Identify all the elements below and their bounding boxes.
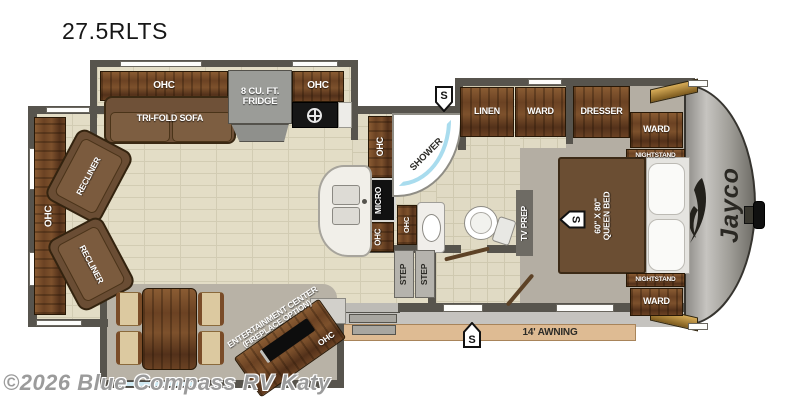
fridge-door [230, 124, 290, 142]
shower-label: SHOWER [409, 137, 445, 173]
bath-ward-label: WARD [527, 107, 554, 116]
dresser-label: DRESSER [580, 107, 622, 116]
stove-cooktop [292, 102, 338, 128]
svg-text:S: S [468, 334, 475, 346]
dinette-chair [116, 292, 142, 326]
pillow [648, 219, 685, 271]
hitch-pin [753, 201, 765, 229]
window [556, 304, 614, 312]
recliner-top-label: RECLINER [75, 155, 103, 196]
burner-icon [307, 108, 322, 123]
kitchen-slide-wall-left [90, 60, 97, 140]
sofa-label: TRI-FOLD SOFA [106, 114, 234, 123]
dinette-chair [198, 292, 224, 326]
window [443, 304, 483, 312]
kitchen-ohc-upper: OHC [368, 116, 393, 178]
step-1-label: STEP [400, 263, 409, 284]
bath-ward-cabinet: WARD [515, 87, 566, 137]
window [36, 320, 82, 326]
speaker-marker-icon: S [555, 211, 586, 229]
entry-step-3 [352, 325, 396, 335]
speaker-marker-icon: S [463, 322, 481, 353]
ward-bottom-cabinet: WARD [630, 288, 683, 316]
nightstand-bottom: NIGHTSTAND [626, 273, 685, 287]
fridge: 8 CU. FT. FRIDGE [228, 70, 292, 124]
recliner-bottom-label: RECLINER [77, 243, 105, 284]
speaker-marker-icon: S [435, 86, 453, 117]
cap-marker-light-top [688, 80, 708, 87]
tv-prep-label: TV PREP [520, 206, 529, 241]
entry-step-2 [349, 314, 397, 323]
awning-label: 14' AWNING [523, 328, 578, 339]
sofa-ohc-label: OHC [153, 81, 175, 92]
counter-strip [338, 102, 352, 128]
dresser: DRESSER [573, 86, 630, 138]
ward-top-label: WARD [643, 125, 670, 134]
svg-text:S: S [440, 90, 447, 102]
linen-cabinet: LINEN [460, 87, 514, 137]
rv-floorplan: 14' AWNING TV PREP [0, 0, 800, 405]
bedroom-top-wall [455, 78, 695, 86]
nightstand-top-label: NIGHTSTAND [635, 153, 675, 160]
dinette-table [142, 288, 197, 370]
fridge-label-line2: FRIDGE [243, 97, 278, 107]
dinette-chair [116, 331, 142, 365]
ward-top-cabinet: WARD [630, 112, 683, 148]
sink-bowl-1 [332, 185, 360, 205]
window [46, 107, 90, 113]
svg-text:S: S [570, 216, 582, 223]
dealer-watermark: ©2026 Blue Compass RV Katy [3, 370, 331, 396]
step-1: STEP [394, 250, 414, 298]
rear-ohc-label: OHC [45, 205, 56, 227]
microwave-label: MICRO [375, 186, 384, 213]
ward-bottom-label: WARD [643, 297, 670, 306]
floorplan-model-title: 27.5RLTS [62, 18, 168, 45]
vanity-ohc-label: OHC [403, 217, 411, 233]
step-2: STEP [415, 250, 435, 298]
window [528, 79, 562, 85]
vanity-basin [422, 214, 441, 242]
tv-prep-wall: TV PREP [516, 190, 533, 256]
linen-label: LINEN [474, 107, 500, 116]
window [120, 61, 202, 67]
kitchen-slide-wall-right [351, 60, 358, 140]
nightstand-bottom-label: NIGHTSTAND [635, 277, 675, 284]
faucet [362, 199, 367, 204]
vanity-ohc: OHC [397, 205, 417, 245]
stove-ohc-label: OHC [307, 81, 329, 92]
step-2-label: STEP [421, 263, 430, 284]
kitchen-ohc-lower-label: OHC [375, 228, 383, 245]
jayco-logo: Jayco [715, 175, 745, 235]
ward-dresser-divider-wall [566, 78, 573, 144]
window [292, 61, 338, 67]
stove-ohc-cabinet: OHC [292, 71, 344, 102]
tri-fold-sofa: TRI-FOLD SOFA [104, 96, 236, 144]
kitchen-ohc-upper-label: OHC [376, 137, 385, 156]
pillow [648, 163, 685, 215]
sink-bowl-2 [332, 207, 360, 225]
bed-label-line2: QUEEN BED [602, 191, 611, 240]
entertainment-ohc-label: OHC [316, 330, 336, 348]
kitchen-counter [318, 165, 372, 257]
vanity-sink [417, 202, 445, 253]
cap-marker-light-bottom [688, 323, 708, 330]
toilet [464, 202, 520, 246]
entry-door-threshold [345, 303, 398, 312]
rear-ohc-cabinet: OHC [34, 117, 66, 315]
